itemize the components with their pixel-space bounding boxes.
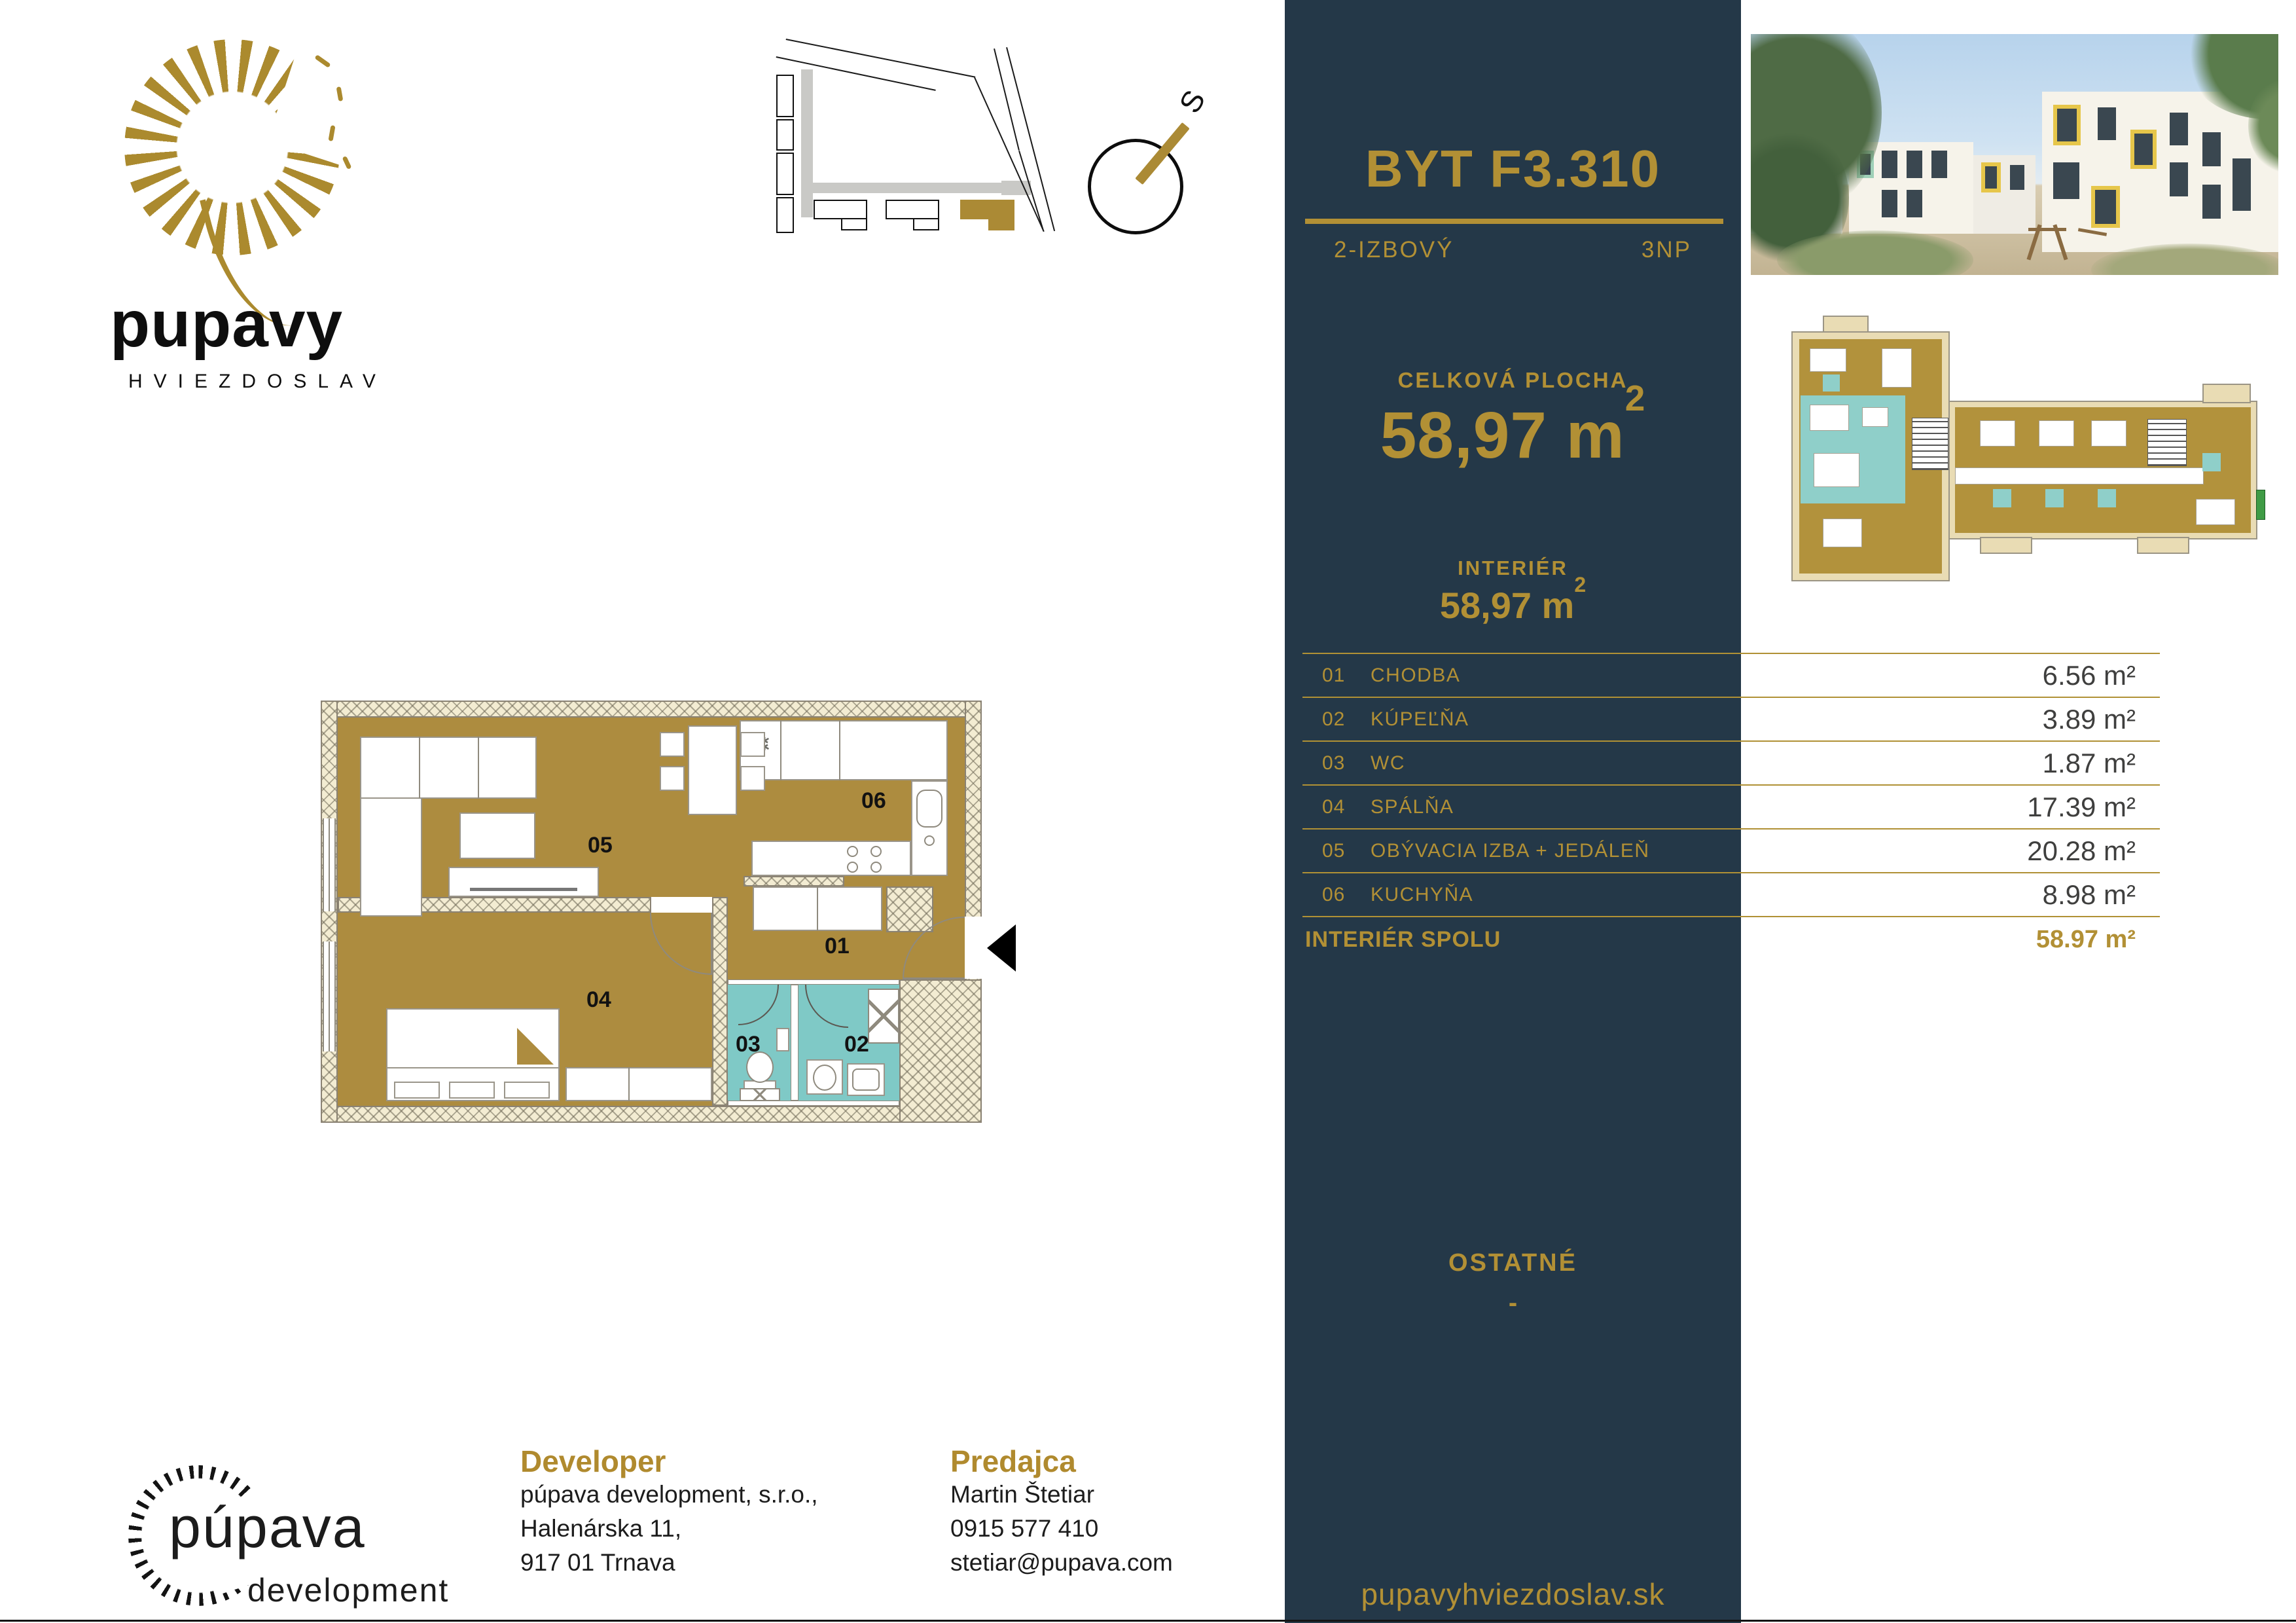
brand-name: pupavy (110, 287, 343, 362)
overview-bathroom (2045, 489, 2064, 507)
kitchen-faucet (924, 835, 935, 846)
overview-exit-marker (2256, 490, 2265, 520)
overview-bathroom (2098, 489, 2116, 507)
table-row: 05 OBÝVACIA IZBA + JEDÁLEŇ 20.28 m² (1302, 828, 2160, 872)
table-row: 06 KUCHYŇA 8.98 m² (1302, 872, 2160, 916)
row-number: 05 (1322, 840, 1345, 862)
blanket-fold (517, 1028, 554, 1065)
entry-arrow-icon (987, 924, 1016, 972)
flyer-page: BYT F3.310 2-IZBOVÝ 3NP CELKOVÁ PLOCHA 5… (0, 0, 2296, 1623)
door-gap-bedroom (651, 897, 712, 913)
dining-chair (660, 766, 685, 791)
wall-wc-bath (791, 985, 798, 1101)
photo-window (2010, 165, 2024, 190)
photo-window (1931, 151, 1947, 178)
row-area: 20.28 m² (2027, 835, 2136, 867)
photo-window (1882, 190, 1897, 217)
overview-room (1980, 420, 2015, 447)
overview-bay (2137, 537, 2189, 554)
cooktop-burner (847, 846, 858, 857)
overview-bathroom (1823, 374, 1840, 392)
brand-subtitle: HVIEZDOSLAV (128, 371, 387, 393)
map-building (814, 200, 867, 219)
photo-window (1882, 151, 1897, 178)
hall-closet-seam (817, 886, 818, 931)
total-row-label: INTERIÉR SPOLU (1305, 927, 1501, 953)
tv-cabinet (448, 867, 599, 897)
map-building (913, 218, 939, 230)
dining-table (688, 725, 737, 815)
cooktop-burner (870, 862, 882, 873)
pillow (504, 1082, 550, 1099)
overview-room (1823, 519, 1862, 547)
wc-sink (776, 1028, 789, 1051)
total-area-value: 58,97 m2 (1285, 398, 1741, 473)
window-mullion (329, 818, 330, 911)
overview-room (2196, 499, 2235, 525)
sofa-chaise (360, 797, 422, 917)
shower (868, 989, 899, 1044)
bath-sink-bowl (852, 1068, 880, 1091)
window-mullion (329, 941, 330, 1051)
wall-top (321, 701, 982, 718)
row-area: 17.39 m² (2027, 792, 2136, 823)
bed-line (386, 1067, 560, 1068)
seller-heading: Predajca (950, 1444, 1076, 1479)
photo-window (1907, 190, 1922, 217)
wall-bedroom-hall (712, 897, 728, 1106)
row-name: SPÁLŇA (1371, 796, 1454, 818)
washbasin-bowl (813, 1065, 836, 1091)
website-link[interactable]: pupavyhviezdoslav.sk (1285, 1577, 1741, 1612)
other-value: - (1285, 1288, 1741, 1318)
overview-corridor (1955, 467, 2204, 484)
row-number: 02 (1322, 708, 1345, 731)
total-area-label: CELKOVÁ PLOCHA (1285, 368, 1741, 393)
unit-type: 2-IZBOVÝ (1334, 237, 1454, 263)
overview-room (2091, 420, 2126, 447)
table-row: 02 KÚPEĽŇA 3.89 m² (1302, 697, 2160, 740)
building-overview-plan (1784, 302, 2265, 584)
developer-line: Halenárska 11, (520, 1515, 681, 1542)
pillow (449, 1082, 495, 1099)
dev-logo-name: púpava (169, 1494, 366, 1561)
photo-window-yellow (2130, 130, 2157, 169)
wall-bath-top (728, 979, 899, 985)
dining-chair (740, 766, 765, 791)
map-building-highlight (960, 200, 1014, 219)
wall-left (321, 701, 338, 1123)
row-name: KÚPEĽŇA (1371, 708, 1469, 731)
interior-value: 58,97 m2 (1285, 584, 1741, 627)
row-number: 01 (1322, 665, 1345, 687)
table-total-row: INTERIÉR SPOLU 58.97 m² (1302, 916, 2160, 962)
wardrobe-seam (628, 1067, 630, 1101)
total-row-area: 58.97 m² (2036, 926, 2136, 954)
wall-kitchen (744, 876, 844, 886)
photo-window (2233, 158, 2251, 211)
map-road-line (776, 56, 936, 91)
photo-window (2170, 113, 2188, 145)
photo-window-yellow (2053, 105, 2081, 145)
cooktop-burner (847, 862, 858, 873)
table-row: 03 WC 1.87 m² (1302, 740, 2160, 784)
sofa (360, 737, 537, 799)
wc-niche (740, 1088, 780, 1101)
row-area: 3.89 m² (2043, 704, 2136, 735)
map-road-gray (801, 183, 1014, 193)
pillow (394, 1082, 440, 1099)
table-row: 04 SPÁLŇA 17.39 m² (1302, 784, 2160, 828)
total-area-unit: m (1566, 399, 1625, 472)
wall-right-thick (899, 979, 982, 1123)
total-area-number: 58,97 (1380, 399, 1547, 472)
overview-room (1882, 348, 1912, 388)
photo-playground (2028, 228, 2066, 231)
sofa-seam (419, 737, 420, 799)
overview-room (2039, 420, 2074, 447)
seller-name: Martin Štetiar (950, 1481, 1094, 1508)
kitchen-counter-low (751, 841, 911, 876)
apartment-floorplan: ❄ (321, 701, 982, 1123)
tv (470, 888, 577, 891)
row-name: WC (1371, 752, 1405, 775)
sofa-seam (478, 737, 479, 799)
photo-window (2170, 162, 2188, 196)
room-label-living: 05 (588, 833, 613, 858)
cooktop-burner (870, 846, 882, 857)
wall-bath-bottom (728, 1101, 899, 1106)
row-number: 06 (1322, 884, 1345, 906)
room-label-bedroom: 04 (586, 987, 611, 1013)
door-leaf-bedroom (711, 913, 713, 975)
row-name: KUCHYŇA (1371, 884, 1473, 906)
photo-window (1907, 151, 1922, 178)
overview-staircase (1912, 418, 1948, 470)
developer-heading: Developer (520, 1444, 666, 1479)
map-building (886, 200, 939, 219)
row-number: 03 (1322, 752, 1345, 775)
interior-label: INTERIÉR (1285, 556, 1741, 580)
unit-floor: 3NP (1641, 237, 1692, 263)
map-building (776, 119, 794, 151)
map-road-line (786, 39, 976, 78)
title-divider (1305, 219, 1723, 224)
dining-chair (660, 732, 685, 757)
map-building (776, 153, 794, 195)
room-area-table: 01 CHODBA 6.56 m² 02 KÚPEĽŇA 3.89 m² 03 … (1302, 653, 2160, 962)
overview-bathroom (2202, 453, 2221, 471)
row-number: 04 (1322, 796, 1345, 818)
photo-window-yellow (2091, 186, 2120, 228)
row-name: CHODBA (1371, 665, 1460, 687)
map-building-highlight (988, 218, 1014, 230)
overview-bay (1980, 537, 2032, 554)
dev-logo-sub: development (247, 1571, 449, 1609)
seller-phone: 0915 577 410 (950, 1515, 1098, 1542)
kitchen-sink (916, 790, 942, 828)
developer-line: púpava development, s.r.o., (520, 1481, 818, 1508)
row-area: 8.98 m² (2043, 879, 2136, 911)
room-label-hall: 01 (825, 934, 850, 959)
photo-window (2098, 107, 2116, 140)
door-leaf-entry (903, 977, 965, 979)
interior-unit: m (1542, 585, 1575, 626)
unit-meta: 2-IZBOVÝ 3NP (1334, 237, 1692, 263)
overview-room (1814, 453, 1859, 487)
overview-room (1810, 405, 1849, 431)
table-row: 01 CHODBA 6.56 m² (1302, 653, 2160, 697)
map-road-line (994, 48, 1020, 151)
shaft (886, 886, 933, 932)
armchair (459, 812, 535, 859)
overview-room (1810, 348, 1846, 372)
wardrobe (565, 1067, 712, 1101)
photo-window (2202, 185, 2221, 219)
bottom-rule (0, 1620, 2296, 1622)
row-area: 6.56 m² (2043, 660, 2136, 691)
photo-window (2202, 132, 2221, 166)
room-label-bath: 02 (844, 1032, 869, 1057)
map-road-gray (801, 69, 813, 217)
dining-chair (740, 732, 765, 757)
map-building (776, 197, 794, 233)
room-label-wc: 03 (736, 1032, 761, 1057)
seller-email: stetiar@pupava.com (950, 1549, 1173, 1577)
interior-number: 58,97 (1440, 585, 1532, 626)
kitchen-counter-seam (839, 720, 840, 780)
overview-staircase (2147, 419, 2187, 466)
total-area-sup: 2 (1625, 378, 1646, 418)
wall-bottom (321, 1106, 982, 1123)
overview-room (1862, 407, 1888, 427)
interior-sup: 2 (1574, 573, 1586, 596)
room-label-kitchen: 06 (861, 788, 886, 814)
building-photo (1751, 34, 2278, 275)
photo-window-yellow (1981, 162, 2001, 192)
other-label: OSTATNÉ (1285, 1249, 1741, 1277)
unit-title: BYT F3.310 (1285, 139, 1741, 199)
overview-bathroom (1993, 489, 2011, 507)
overview-bay (2202, 384, 2251, 403)
map-building (776, 75, 794, 117)
site-map (759, 26, 1067, 242)
kitchen-counter-seam (780, 720, 781, 780)
developer-line: 917 01 Trnava (520, 1549, 675, 1577)
row-area: 1.87 m² (2043, 748, 2136, 779)
entry-door-gap (965, 917, 982, 979)
map-building (841, 218, 867, 230)
row-name: OBÝVACIA IZBA + JEDÁLEŇ (1371, 840, 1650, 862)
compass-north-label: S (1172, 84, 1212, 119)
photo-window (2053, 162, 2079, 199)
